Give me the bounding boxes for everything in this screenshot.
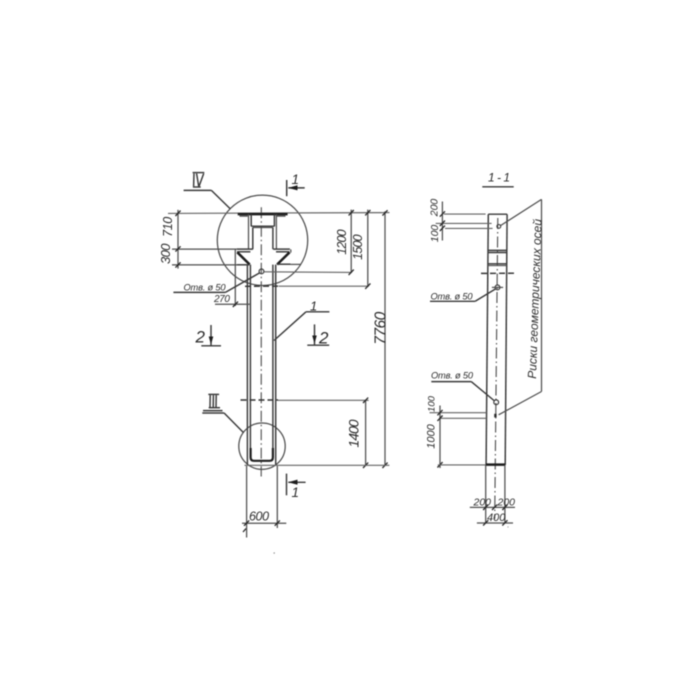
svg-text:7760: 7760: [373, 311, 390, 344]
svg-text:200: 200: [473, 497, 492, 509]
svg-text:100: 100: [426, 395, 437, 412]
svg-text:1: 1: [292, 485, 300, 500]
svg-text:400: 400: [487, 512, 506, 524]
svg-text:1 - 1: 1 - 1: [488, 171, 510, 185]
svg-text:300: 300: [158, 243, 173, 264]
svg-text:1: 1: [310, 299, 317, 314]
svg-text:Отв. ø 50: Отв. ø 50: [431, 292, 474, 302]
svg-text:710: 710: [161, 217, 175, 237]
svg-text:Отв. ø 50: Отв. ø 50: [431, 371, 474, 381]
svg-text:100: 100: [429, 225, 441, 243]
svg-text:200: 200: [429, 199, 441, 218]
svg-text:1000: 1000: [425, 423, 437, 448]
svg-text:2: 2: [195, 328, 206, 347]
svg-text:1200: 1200: [335, 229, 349, 254]
svg-text:270: 270: [213, 294, 230, 305]
svg-text:1500: 1500: [351, 234, 365, 259]
svg-text:Отв. ø 50: Отв. ø 50: [184, 283, 227, 293]
svg-text:600: 600: [249, 510, 269, 524]
svg-text:1: 1: [292, 172, 300, 187]
svg-text:1400: 1400: [346, 419, 362, 447]
